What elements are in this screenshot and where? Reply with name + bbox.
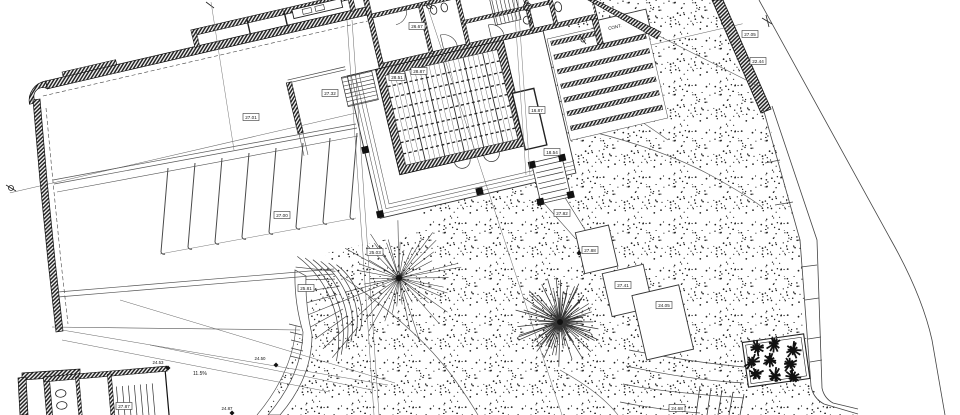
svg-text:27.82: 27.82 [556,211,568,216]
svg-text:25.81: 25.81 [300,286,312,291]
svg-text:24.50: 24.50 [255,356,267,361]
svg-text:28.87: 28.87 [413,69,425,74]
svg-text:24.53: 24.53 [153,360,165,365]
svg-text:16.87: 16.87 [531,108,543,113]
svg-text:27.87: 27.87 [118,404,130,409]
svg-text:27.88: 27.88 [584,248,596,253]
svg-text:24.68: 24.68 [671,406,683,411]
svg-text:27.00: 27.00 [276,213,288,218]
svg-text:25.03: 25.03 [369,250,381,255]
svg-text:27.41: 27.41 [617,283,629,288]
svg-text:27.01: 27.01 [245,115,257,120]
svg-text:27.05: 27.05 [744,32,756,37]
svg-text:24.05: 24.05 [658,303,670,308]
svg-text:26.67: 26.67 [411,24,423,29]
svg-text:11.5%: 11.5% [193,371,207,377]
svg-text:28.51: 28.51 [391,75,403,80]
svg-text:24.87: 24.87 [222,406,234,411]
svg-text:18.54: 18.54 [546,150,558,155]
svg-text:22.44: 22.44 [752,59,764,64]
svg-text:27.32: 27.32 [324,91,336,96]
